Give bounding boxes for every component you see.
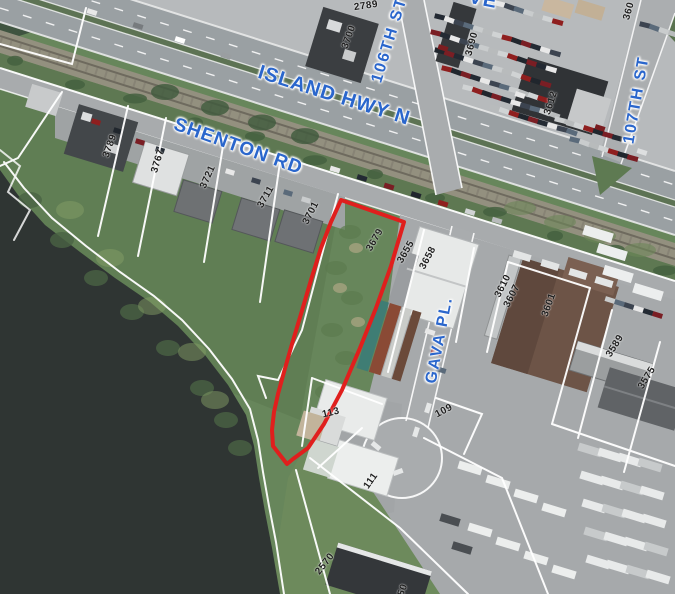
aerial-parcel-map: ISLAND HWY N SHENTON RD 106TH ST 107TH S… (0, 0, 675, 594)
aerial-imagery (0, 0, 675, 594)
